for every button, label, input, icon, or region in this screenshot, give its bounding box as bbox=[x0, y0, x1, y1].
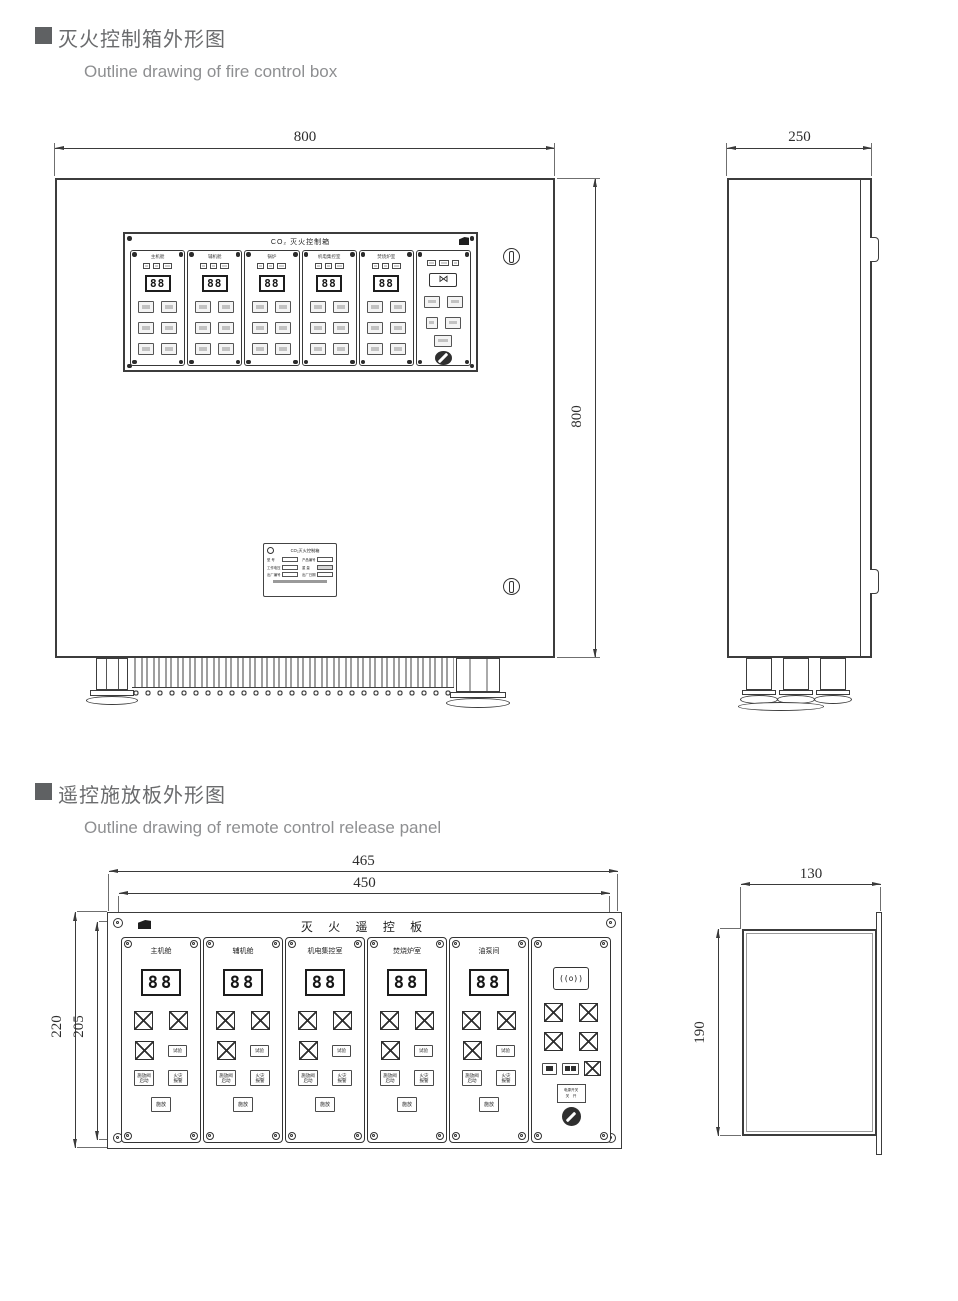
nameplate-field-label: 出厂编号 bbox=[267, 572, 280, 577]
crossed-lamp bbox=[135, 1041, 154, 1060]
zone-button[interactable] bbox=[333, 301, 349, 313]
foot-base bbox=[446, 698, 510, 708]
crossed-lamp bbox=[381, 1041, 400, 1060]
zone-button[interactable] bbox=[138, 343, 154, 355]
screw-icon bbox=[436, 1132, 444, 1140]
remote-panel: 灭 火 遥 控 板 主机舱 88 试验 施放阀启动 火灾报警 施放 辅机舱 88 bbox=[107, 912, 622, 1149]
dim-line bbox=[109, 871, 618, 872]
gland-feet-row bbox=[130, 688, 456, 698]
common-button[interactable] bbox=[424, 296, 440, 308]
panel-zone-3: 锅炉 88 bbox=[244, 250, 299, 366]
panel-zone-1: 主机舱 88 bbox=[130, 250, 185, 366]
screw-icon bbox=[518, 1132, 526, 1140]
extension-line bbox=[617, 874, 618, 911]
zone-button[interactable] bbox=[252, 343, 268, 355]
crossed-lamp bbox=[544, 1003, 563, 1022]
dim-label-width: 800 bbox=[55, 129, 555, 146]
zone-button[interactable] bbox=[161, 343, 177, 355]
screw-icon bbox=[600, 1132, 608, 1140]
screw-icon bbox=[189, 360, 194, 365]
remote-side-inner-line bbox=[746, 933, 873, 1132]
release-button[interactable]: 施放 bbox=[151, 1097, 171, 1112]
button-label: 报警 bbox=[256, 1078, 265, 1083]
zone-label: 锅炉 bbox=[267, 254, 276, 260]
zone-button[interactable] bbox=[333, 322, 349, 334]
status-indicator bbox=[257, 263, 264, 269]
screw-icon bbox=[124, 1132, 132, 1140]
common-button[interactable] bbox=[542, 1063, 557, 1075]
test-button[interactable]: 试验 bbox=[414, 1045, 433, 1057]
screw-icon bbox=[189, 252, 194, 257]
nameplate-footer-text bbox=[273, 580, 327, 583]
button-label: 启动 bbox=[304, 1078, 313, 1083]
zone-label: 机电集控室 bbox=[308, 946, 343, 956]
status-indicators bbox=[315, 263, 344, 269]
status-indicator bbox=[427, 260, 436, 266]
dim-label-outer-width: 465 bbox=[109, 853, 618, 870]
mounting-foot bbox=[96, 658, 128, 690]
release-button[interactable]: 施放 bbox=[479, 1097, 499, 1112]
status-indicator bbox=[200, 263, 207, 269]
screw-icon bbox=[236, 252, 241, 257]
screw-icon bbox=[132, 252, 137, 257]
button-label: 启动 bbox=[140, 1078, 149, 1083]
remote-side-flange bbox=[876, 912, 882, 1155]
screw-icon bbox=[127, 236, 132, 241]
seven-segment-display: 88 bbox=[259, 275, 285, 292]
cable-gland-row bbox=[132, 658, 454, 688]
zone-label: 主机舱 bbox=[151, 946, 172, 956]
nameplate-field-box bbox=[317, 557, 333, 562]
release-valve-button[interactable]: 施放阀启动 bbox=[216, 1070, 236, 1086]
zone-button[interactable] bbox=[195, 301, 211, 313]
status-indicator bbox=[153, 263, 160, 269]
crossed-lamp bbox=[251, 1011, 270, 1030]
zone-button[interactable] bbox=[367, 322, 383, 334]
screw-icon bbox=[246, 360, 251, 365]
screw-icon bbox=[407, 252, 412, 257]
screw-icon bbox=[361, 360, 366, 365]
seven-segment-display: 88 bbox=[373, 275, 399, 292]
zone-label: 主机舱 bbox=[151, 254, 165, 260]
extension-line bbox=[740, 887, 741, 928]
seven-segment-display: 88 bbox=[223, 969, 263, 996]
panel-title: CO₂ 灭火控制箱 bbox=[125, 237, 476, 247]
fire-box-side-enclosure bbox=[727, 178, 872, 658]
extension-line bbox=[54, 143, 55, 176]
remote-zone-4: 焚烧炉室 88 试验 施放阀启动 火灾报警 施放 bbox=[367, 937, 447, 1143]
seven-segment-display: 88 bbox=[469, 969, 509, 996]
dim-line bbox=[741, 884, 881, 885]
release-button[interactable]: 施放 bbox=[397, 1097, 417, 1112]
seven-segment-display: 88 bbox=[387, 969, 427, 996]
zone-button[interactable] bbox=[310, 322, 326, 334]
screw-icon bbox=[470, 236, 475, 241]
zone-button[interactable] bbox=[367, 343, 383, 355]
zone-button[interactable] bbox=[252, 301, 268, 313]
fire-alarm-button[interactable]: 火灾报警 bbox=[168, 1070, 188, 1086]
test-button[interactable]: 试验 bbox=[332, 1045, 351, 1057]
crossed-lamp bbox=[415, 1011, 434, 1030]
zone-label: 焚烧炉室 bbox=[393, 946, 421, 956]
nameplate: CO₂灭火控制箱 型 号 工作电压 出厂编号 产品编号 重 量 出厂日期 bbox=[263, 543, 337, 597]
screw-icon bbox=[418, 360, 423, 365]
dim-label-side-height: 190 bbox=[692, 1021, 709, 1044]
zone-button[interactable] bbox=[333, 343, 349, 355]
status-indicator bbox=[220, 263, 229, 269]
screw-icon bbox=[436, 940, 444, 948]
status-indicator bbox=[277, 263, 286, 269]
screw-icon bbox=[179, 360, 184, 365]
test-button[interactable]: 试验 bbox=[168, 1045, 187, 1057]
extension-line bbox=[557, 657, 600, 658]
status-indicators bbox=[257, 263, 286, 269]
screw-icon bbox=[600, 940, 608, 948]
status-indicator bbox=[210, 263, 217, 269]
dim-label-side-width: 130 bbox=[741, 866, 881, 883]
crossed-lamp bbox=[134, 1011, 153, 1030]
panel-zone-5: 焚烧炉室 88 bbox=[359, 250, 414, 366]
remote-zone-1: 主机舱 88 试验 施放阀启动 火灾报警 施放 bbox=[121, 937, 201, 1143]
status-indicators bbox=[372, 263, 401, 269]
dim-line bbox=[595, 178, 596, 658]
status-indicator bbox=[372, 263, 379, 269]
gland-base bbox=[814, 695, 852, 704]
status-indicator bbox=[267, 263, 274, 269]
section-marker-icon bbox=[35, 783, 52, 800]
release-button[interactable]: 施放 bbox=[315, 1097, 335, 1112]
crossed-lamp bbox=[333, 1011, 352, 1030]
status-indicators bbox=[143, 263, 172, 269]
screw-icon bbox=[361, 252, 366, 257]
remote-zone-2: 辅机舱 88 试验 施放阀启动 火灾报警 施放 bbox=[203, 937, 283, 1143]
release-button[interactable]: 施放 bbox=[233, 1097, 253, 1112]
remote-zone-3: 机电集控室 88 试验 施放阀启动 火灾报警 施放 bbox=[285, 937, 365, 1143]
gland-base-wide bbox=[738, 702, 824, 711]
zone-button[interactable] bbox=[275, 301, 291, 313]
extension-line bbox=[108, 874, 109, 911]
nameplate-field-box bbox=[317, 572, 333, 577]
screw-icon bbox=[452, 1132, 460, 1140]
status-indicator bbox=[325, 263, 332, 269]
zone-label: 油泵间 bbox=[479, 946, 500, 956]
screw-icon bbox=[418, 252, 423, 257]
nameplate-field-box bbox=[282, 557, 298, 562]
status-indicator bbox=[163, 263, 172, 269]
button-label: 启动 bbox=[468, 1078, 477, 1083]
button-label: 报警 bbox=[174, 1078, 183, 1083]
seven-segment-display: 88 bbox=[202, 275, 228, 292]
zone-label: 辅机舱 bbox=[208, 254, 222, 260]
dim-label-inner-height: 205 bbox=[71, 1015, 88, 1038]
screw-icon bbox=[288, 1132, 296, 1140]
crossed-lamp bbox=[216, 1011, 235, 1030]
panel-zones: 主机舱 88 辅机舱 88 锅炉 bbox=[130, 250, 471, 366]
nameplate-field-box bbox=[282, 565, 298, 570]
status-indicator bbox=[335, 263, 344, 269]
screw-icon bbox=[370, 940, 378, 948]
dim-line bbox=[55, 148, 555, 149]
screw-icon bbox=[206, 940, 214, 948]
drawing-page: 灭火控制箱外形图 Outline drawing of fire control… bbox=[0, 0, 958, 1301]
nameplate-field-label: 出厂日期 bbox=[302, 572, 315, 577]
common-button[interactable] bbox=[447, 296, 463, 308]
fire-alarm-button[interactable]: 火灾报警 bbox=[250, 1070, 270, 1086]
seven-segment-display: 88 bbox=[305, 969, 345, 996]
zone-label: 焚烧炉室 bbox=[377, 254, 395, 260]
screw-icon bbox=[452, 940, 460, 948]
common-button[interactable] bbox=[445, 317, 461, 329]
cable-gland bbox=[783, 658, 809, 690]
section-marker-icon bbox=[35, 27, 52, 44]
zone-button[interactable] bbox=[275, 322, 291, 334]
status-indicators bbox=[427, 260, 459, 266]
dim-label-outer-height: 220 bbox=[49, 1015, 66, 1038]
screw-icon bbox=[354, 940, 362, 948]
screw-icon bbox=[272, 1132, 280, 1140]
mounting-foot bbox=[456, 658, 500, 692]
zone-button[interactable] bbox=[161, 322, 177, 334]
bowtie-indicator-icon: ⋈ bbox=[429, 273, 457, 287]
power-label-line: 关 开 bbox=[566, 1094, 577, 1099]
screw-icon bbox=[350, 252, 355, 257]
crossed-lamp bbox=[462, 1011, 481, 1030]
section2-title-en: Outline drawing of remote control releas… bbox=[84, 818, 441, 838]
nameplate-logo-icon bbox=[267, 547, 274, 554]
nameplate-field-box bbox=[317, 565, 333, 570]
section1-title-zh: 灭火控制箱外形图 bbox=[58, 23, 226, 52]
screw-icon bbox=[236, 360, 241, 365]
zone-button[interactable] bbox=[138, 322, 154, 334]
screw-icon bbox=[206, 1132, 214, 1140]
door-lock-keyhole[interactable] bbox=[503, 578, 520, 595]
dim-line bbox=[119, 893, 610, 894]
extension-line bbox=[557, 178, 600, 179]
screw-icon bbox=[272, 940, 280, 948]
zone-button[interactable] bbox=[367, 301, 383, 313]
extension-line bbox=[720, 928, 741, 929]
power-switch-label: 电源开关 关 开 bbox=[557, 1084, 586, 1103]
screw-icon bbox=[304, 252, 309, 257]
nameplate-field-label: 工作电压 bbox=[267, 565, 280, 570]
status-indicator bbox=[392, 263, 401, 269]
dim-label-inner-width: 450 bbox=[119, 875, 610, 892]
zone-button[interactable] bbox=[252, 322, 268, 334]
door-hinge bbox=[870, 569, 879, 594]
crossed-lamp bbox=[463, 1041, 482, 1060]
dim-label-height: 800 bbox=[569, 405, 586, 428]
panel-zone-common: ⋈ bbox=[416, 250, 471, 366]
panel-zone-4: 机电集控室 88 bbox=[302, 250, 357, 366]
zone-button[interactable] bbox=[195, 343, 211, 355]
screw-icon bbox=[179, 252, 184, 257]
screw-icon bbox=[370, 1132, 378, 1140]
screw-icon bbox=[246, 252, 251, 257]
crossed-lamp bbox=[299, 1041, 318, 1060]
panel-zone-2: 辅机舱 88 bbox=[187, 250, 242, 366]
extension-line bbox=[554, 143, 555, 176]
extension-line bbox=[77, 1147, 107, 1148]
screw-icon bbox=[132, 360, 137, 365]
remote-zones: 主机舱 88 试验 施放阀启动 火灾报警 施放 辅机舱 88 试验 施放阀启动 bbox=[121, 937, 611, 1143]
screw-icon bbox=[407, 360, 412, 365]
button-label: 报警 bbox=[338, 1078, 347, 1083]
screw-icon bbox=[288, 940, 296, 948]
screw-icon bbox=[124, 940, 132, 948]
release-valve-button[interactable]: 施放阀启动 bbox=[298, 1070, 318, 1086]
test-button[interactable]: 试验 bbox=[250, 1045, 269, 1057]
zone-button[interactable] bbox=[195, 322, 211, 334]
crossed-lamp bbox=[544, 1032, 563, 1051]
status-indicator bbox=[452, 260, 459, 266]
cable-gland bbox=[746, 658, 772, 690]
screw-icon bbox=[354, 1132, 362, 1140]
section1-title-en: Outline drawing of fire control box bbox=[84, 62, 337, 82]
seven-segment-display: 88 bbox=[316, 275, 342, 292]
status-indicator bbox=[382, 263, 389, 269]
extension-line bbox=[726, 143, 727, 176]
door-edge-line bbox=[860, 178, 861, 658]
zone-button[interactable] bbox=[310, 301, 326, 313]
screw-icon bbox=[293, 252, 298, 257]
fire-alarm-button[interactable]: 火灾报警 bbox=[496, 1070, 516, 1086]
screw-icon bbox=[465, 360, 470, 365]
status-indicator bbox=[143, 263, 150, 269]
screw-icon bbox=[190, 940, 198, 948]
fire-alarm-button[interactable]: 火灾报警 bbox=[332, 1070, 352, 1086]
rotary-switch[interactable] bbox=[435, 351, 452, 365]
status-indicator bbox=[315, 263, 322, 269]
extension-line bbox=[880, 887, 881, 911]
nameplate-title: CO₂灭火控制箱 bbox=[277, 548, 333, 554]
remote-panel-title: 灭 火 遥 控 板 bbox=[108, 918, 621, 935]
zone-label: 机电集控室 bbox=[318, 254, 341, 260]
cable-gland bbox=[820, 658, 846, 690]
extension-line bbox=[77, 911, 107, 912]
screw-icon bbox=[518, 940, 526, 948]
common-button[interactable] bbox=[562, 1063, 579, 1075]
screw-icon bbox=[304, 360, 309, 365]
fire-alarm-button[interactable]: 火灾报警 bbox=[414, 1070, 434, 1086]
seven-segment-display: 88 bbox=[145, 275, 171, 292]
door-hinge bbox=[870, 237, 879, 262]
alarm-speaker-icon: ((o)) bbox=[553, 967, 589, 990]
fire-control-panel: CO₂ 灭火控制箱 主机舱 88 辅机舱 88 bbox=[123, 232, 478, 372]
crossed-lamp bbox=[584, 1061, 601, 1076]
nameplate-field-label: 重 量 bbox=[302, 565, 315, 570]
screw-icon bbox=[190, 1132, 198, 1140]
door-lock-keyhole[interactable] bbox=[503, 248, 520, 265]
seven-segment-display: 88 bbox=[141, 969, 181, 996]
zone-button[interactable] bbox=[138, 301, 154, 313]
zone-button[interactable] bbox=[390, 343, 406, 355]
common-button[interactable] bbox=[426, 317, 438, 329]
zone-button[interactable] bbox=[218, 322, 234, 334]
extension-line bbox=[720, 1135, 741, 1136]
zone-button[interactable] bbox=[390, 322, 406, 334]
screw-icon bbox=[350, 360, 355, 365]
zone-button[interactable] bbox=[310, 343, 326, 355]
button-label: 报警 bbox=[502, 1078, 511, 1083]
zone-button[interactable] bbox=[218, 301, 234, 313]
nameplate-field-label: 产品编号 bbox=[302, 557, 315, 562]
crossed-lamp bbox=[579, 1032, 598, 1051]
remote-zone-common: ((o)) 电源开关 关 开 bbox=[531, 937, 611, 1143]
remote-zone-5: 油泵间 88 试验 施放阀启动 火灾报警 施放 bbox=[449, 937, 529, 1143]
crossed-lamp bbox=[497, 1011, 516, 1030]
dim-line bbox=[718, 929, 719, 1136]
zone-label: 辅机舱 bbox=[233, 946, 254, 956]
zone-button[interactable] bbox=[218, 343, 234, 355]
test-button[interactable]: 试验 bbox=[496, 1045, 515, 1057]
release-valve-button[interactable]: 施放阀启动 bbox=[380, 1070, 400, 1086]
dim-line bbox=[97, 922, 98, 1140]
screw-icon bbox=[293, 360, 298, 365]
power-rotary-switch[interactable] bbox=[562, 1107, 581, 1126]
release-valve-button[interactable]: 施放阀启动 bbox=[134, 1070, 154, 1086]
section2-title-zh: 遥控施放板外形图 bbox=[58, 779, 226, 808]
nameplate-field-label: 型 号 bbox=[267, 557, 280, 562]
common-button[interactable] bbox=[434, 335, 452, 347]
extension-line bbox=[871, 143, 872, 176]
zone-button[interactable] bbox=[390, 301, 406, 313]
button-label: 报警 bbox=[420, 1078, 429, 1083]
dim-label-depth: 250 bbox=[727, 129, 872, 146]
status-indicators bbox=[200, 263, 229, 269]
zone-button[interactable] bbox=[275, 343, 291, 355]
button-label: 启动 bbox=[386, 1078, 395, 1083]
screw-icon bbox=[465, 252, 470, 257]
crossed-lamp bbox=[579, 1003, 598, 1022]
nameplate-field-box bbox=[282, 572, 298, 577]
dim-line bbox=[727, 148, 872, 149]
screw-icon bbox=[534, 940, 542, 948]
release-valve-button[interactable]: 施放阀启动 bbox=[462, 1070, 482, 1086]
zone-button[interactable] bbox=[161, 301, 177, 313]
button-label: 启动 bbox=[222, 1078, 231, 1083]
crossed-lamp bbox=[298, 1011, 317, 1030]
crossed-lamp bbox=[380, 1011, 399, 1030]
crossed-lamp bbox=[217, 1041, 236, 1060]
screw-icon bbox=[534, 1132, 542, 1140]
crossed-lamp bbox=[169, 1011, 188, 1030]
status-indicator bbox=[439, 260, 449, 266]
